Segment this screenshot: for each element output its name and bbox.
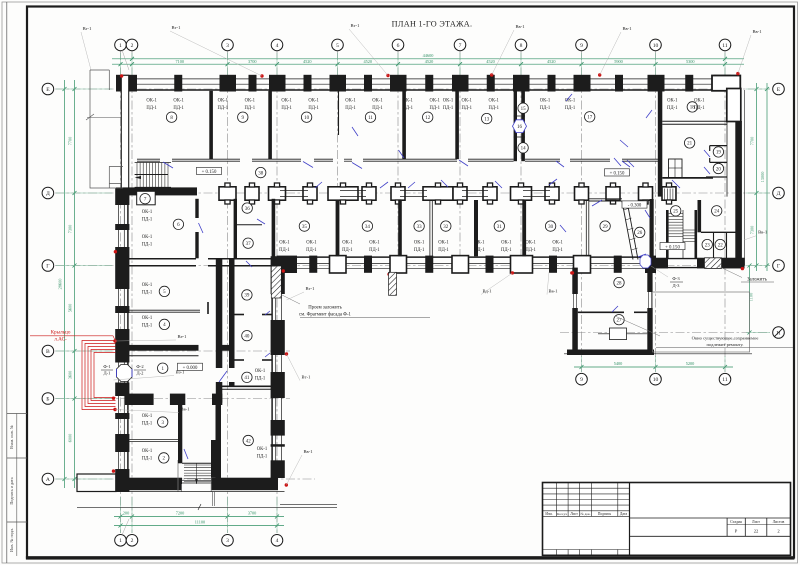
svg-text:Д-2: Д-2 [137, 371, 145, 376]
svg-text:Е: Е [777, 87, 781, 93]
svg-text:А: А [46, 477, 50, 483]
svg-text:30: 30 [548, 225, 554, 230]
svg-text:21: 21 [687, 142, 693, 147]
svg-text:Стадия: Стадия [730, 520, 742, 524]
svg-text:ПД-1: ПД-1 [501, 248, 512, 253]
svg-text:11: 11 [368, 116, 373, 121]
svg-text:Ф-1: Ф-1 [103, 364, 111, 369]
svg-text:26: 26 [637, 231, 643, 236]
svg-text:31: 31 [497, 225, 503, 230]
svg-text:4520: 4520 [363, 59, 372, 64]
svg-text:Вв-1: Вв-1 [752, 29, 762, 34]
svg-text:3: 3 [226, 538, 229, 544]
svg-text:ОК-1: ОК-1 [281, 99, 292, 104]
svg-text:Вт-1: Вт-1 [172, 25, 182, 30]
svg-text:ПД-1: ПД-1 [142, 422, 153, 427]
svg-text:11: 11 [722, 43, 728, 49]
svg-text:Д-3: Д-3 [673, 283, 681, 288]
svg-text:22: 22 [718, 243, 724, 248]
svg-text:ОК-1: ОК-1 [525, 241, 536, 246]
svg-text:ПД-1: ПД-1 [372, 106, 383, 111]
svg-text:4: 4 [276, 538, 279, 544]
svg-text:13000: 13000 [760, 172, 765, 183]
svg-text:29: 29 [603, 225, 609, 230]
svg-text:1: 1 [119, 538, 122, 544]
svg-text:24: 24 [714, 210, 720, 215]
svg-text:ОК-1: ОК-1 [552, 241, 563, 246]
svg-text:л.АС-: л.АС- [54, 337, 67, 343]
svg-text:- 0.300: - 0.300 [628, 204, 642, 209]
svg-text:6: 6 [397, 43, 400, 49]
svg-text:Кол.уч: Кол.уч [557, 512, 567, 516]
svg-text:1: 1 [119, 43, 122, 49]
svg-text:Вв-1: Вв-1 [758, 230, 768, 235]
svg-text:ПД-1: ПД-1 [540, 106, 551, 111]
svg-text:Ф-3: Ф-3 [672, 276, 680, 281]
svg-text:Вд-1: Вд-1 [482, 289, 492, 294]
svg-text:4520: 4520 [486, 59, 495, 64]
svg-text:12: 12 [425, 116, 431, 121]
svg-text:7200: 7200 [176, 511, 185, 516]
svg-text:№ док.: № док. [581, 512, 591, 516]
svg-text:ПД-1: ПД-1 [146, 106, 157, 111]
svg-text:15: 15 [521, 107, 527, 112]
svg-text:ПД-1: ПД-1 [474, 248, 485, 253]
svg-text:7300: 7300 [750, 226, 755, 235]
svg-text:8: 8 [520, 43, 523, 49]
svg-text:ОК-1: ОК-1 [501, 241, 512, 246]
svg-text:ОК-1: ОК-1 [443, 99, 454, 104]
svg-text:36: 36 [245, 207, 251, 212]
svg-text:20: 20 [716, 167, 722, 172]
svg-text:+ 0.000: + 0.000 [183, 366, 198, 371]
svg-text:ПД-1: ПД-1 [142, 243, 153, 248]
svg-text:ОК-1: ОК-1 [474, 241, 485, 246]
svg-text:ОК-1: ОК-1 [414, 241, 425, 246]
svg-text:ОК-1: ОК-1 [369, 241, 380, 246]
svg-text:ПД-1: ПД-1 [552, 248, 563, 253]
svg-text:ОК-1: ОК-1 [255, 369, 266, 374]
svg-text:Подпись: Подпись [598, 512, 612, 516]
svg-text:ОК-1: ОК-1 [142, 449, 153, 454]
svg-text:ОК-1: ОК-1 [173, 99, 184, 104]
svg-text:Ф-2: Ф-2 [136, 364, 144, 369]
svg-text:Д: Д [46, 191, 50, 197]
svg-text:В: В [46, 349, 50, 355]
svg-text:10: 10 [653, 377, 659, 383]
svg-text:40: 40 [244, 335, 250, 340]
svg-text:ПД-1: ПД-1 [279, 248, 290, 253]
svg-text:ПД-1: ПД-1 [694, 106, 705, 111]
svg-text:Б: Б [46, 396, 49, 402]
svg-text:ПД-1: ПД-1 [443, 106, 454, 111]
svg-text:ПД-1: ПД-1 [438, 248, 449, 253]
svg-text:ОК-1: ОК-1 [257, 447, 268, 452]
svg-text:ПД-1: ПД-1 [142, 324, 153, 329]
svg-text:см. Фрагмент фасада Ф-1: см. Фрагмент фасада Ф-1 [299, 313, 352, 318]
svg-text:33: 33 [417, 225, 423, 230]
svg-text:ПД-1: ПД-1 [245, 106, 256, 111]
svg-text:+ 0.150: + 0.150 [665, 245, 680, 250]
svg-text:Инв. № подл.: Инв. № подл. [9, 528, 14, 552]
svg-text:Вт-1: Вт-1 [302, 375, 312, 380]
svg-text:4520: 4520 [425, 59, 434, 64]
svg-text:Ве-1: Ве-1 [178, 334, 188, 339]
svg-text:ОК-1: ОК-1 [461, 99, 472, 104]
svg-text:16: 16 [517, 125, 523, 130]
svg-text:7300: 7300 [68, 225, 73, 234]
svg-text:ОК-1: ОК-1 [279, 241, 290, 246]
svg-text:41: 41 [244, 376, 250, 381]
svg-text:3: 3 [226, 43, 229, 49]
svg-text:Е: Е [46, 87, 50, 93]
svg-text:Лист: Лист [570, 512, 578, 516]
svg-text:4520: 4520 [303, 59, 312, 64]
svg-text:10: 10 [304, 116, 310, 121]
svg-text:22: 22 [754, 529, 759, 534]
svg-text:2: 2 [131, 43, 134, 49]
svg-text:Вз-1: Вз-1 [176, 370, 185, 375]
svg-text:3700: 3700 [248, 59, 257, 64]
svg-text:Подпись и дата: Подпись и дата [9, 477, 14, 504]
svg-text:Р: Р [735, 529, 738, 534]
svg-text:3600: 3600 [68, 371, 73, 380]
svg-text:5600: 5600 [68, 304, 73, 313]
svg-text:ОК-1: ОК-1 [306, 241, 317, 246]
svg-text:ПД-1: ПД-1 [142, 291, 153, 296]
svg-text:ПД-1: ПД-1 [255, 377, 266, 382]
svg-text:27: 27 [617, 319, 623, 324]
svg-text:17: 17 [587, 116, 593, 121]
svg-text:Вт-1: Вт-1 [306, 286, 316, 291]
svg-text:42: 42 [246, 439, 252, 444]
svg-text:7100: 7100 [175, 59, 184, 64]
svg-text:ОК-1: ОК-1 [667, 99, 678, 104]
svg-text:ОК-1: ОК-1 [540, 99, 551, 104]
svg-text:Д: Д [777, 191, 781, 197]
svg-text:39: 39 [244, 294, 250, 299]
svg-text:23: 23 [705, 243, 711, 248]
svg-text:ОК-1: ОК-1 [142, 283, 153, 288]
svg-text:7: 7 [459, 43, 462, 49]
svg-text:28: 28 [617, 281, 623, 286]
svg-text:Вв-1: Вв-1 [515, 24, 525, 29]
svg-text:10: 10 [653, 43, 659, 49]
svg-text:19: 19 [716, 151, 722, 156]
svg-text:Вв-1: Вв-1 [548, 289, 558, 294]
svg-text:ПД-1: ПД-1 [429, 106, 440, 111]
svg-text:28600: 28600 [58, 279, 63, 290]
svg-text:ПД-1: ПД-1 [142, 218, 153, 223]
svg-text:ПД-1: ПД-1 [488, 106, 499, 111]
svg-text:ОК-1: ОК-1 [308, 99, 319, 104]
svg-text:ПД-1: ПД-1 [308, 106, 319, 111]
svg-text:25: 25 [673, 210, 679, 215]
svg-text:5300: 5300 [686, 59, 695, 64]
svg-text:Вв-1: Вв-1 [303, 449, 313, 454]
svg-text:ПД-1: ПД-1 [306, 248, 317, 253]
svg-text:ПД-1: ПД-1 [565, 106, 576, 111]
svg-text:ОК-1: ОК-1 [218, 99, 229, 104]
svg-text:ПД-1: ПД-1 [369, 248, 380, 253]
svg-text:ПД-1: ПД-1 [142, 457, 153, 462]
svg-text:ПД-1: ПД-1 [218, 106, 229, 111]
svg-text:37: 37 [246, 242, 252, 247]
svg-text:38: 38 [258, 171, 264, 176]
svg-text:5400: 5400 [614, 361, 623, 366]
svg-text:13: 13 [484, 117, 490, 122]
svg-text:Дата: Дата [620, 512, 628, 516]
svg-text:ОК-1: ОК-1 [345, 99, 356, 104]
svg-text:ПД-1: ПД-1 [345, 106, 356, 111]
svg-text:подлежит ремонту.: подлежит ремонту. [706, 342, 743, 347]
svg-text:Взам. инв. №: Взам. инв. № [9, 425, 14, 449]
svg-text:ОК-1: ОК-1 [245, 99, 256, 104]
svg-text:4520: 4520 [547, 59, 556, 64]
svg-text:+ 0.150: + 0.150 [610, 172, 625, 177]
svg-text:ПД-1: ПД-1 [414, 248, 425, 253]
svg-text:ОК-1: ОК-1 [488, 99, 499, 104]
svg-text:Д-1: Д-1 [104, 371, 112, 376]
svg-text:11100: 11100 [195, 520, 205, 525]
svg-text:5900: 5900 [614, 59, 623, 64]
svg-text:Листов: Листов [773, 520, 785, 524]
svg-text:ПД-1: ПД-1 [342, 248, 353, 253]
svg-text:Вг-1: Вг-1 [83, 26, 92, 31]
svg-text:2: 2 [131, 538, 134, 544]
svg-text:ОК-1: ОК-1 [142, 235, 153, 240]
svg-text:7700: 7700 [68, 137, 73, 146]
svg-text:7700: 7700 [750, 137, 755, 146]
svg-text:Вв-1: Вв-1 [622, 26, 632, 31]
svg-text:ОК-1: ОК-1 [142, 414, 153, 419]
svg-text:9: 9 [580, 43, 583, 49]
svg-text:9: 9 [580, 377, 583, 383]
svg-text:Крыльцо: Крыльцо [51, 330, 71, 336]
svg-text:3700: 3700 [248, 511, 257, 516]
svg-text:32: 32 [443, 225, 449, 230]
svg-text:Проем заложить: Проем заложить [308, 306, 342, 311]
svg-text:ПД-1: ПД-1 [281, 106, 292, 111]
svg-text:ОК-1: ОК-1 [438, 241, 449, 246]
svg-text:ПД-1: ПД-1 [461, 106, 472, 111]
svg-text:ОК-1: ОК-1 [342, 241, 353, 246]
svg-text:ПД-1: ПД-1 [257, 455, 268, 460]
svg-text:5: 5 [336, 43, 339, 49]
svg-text:6000: 6000 [68, 434, 73, 443]
svg-text:11: 11 [722, 377, 728, 383]
svg-text:4: 4 [276, 43, 279, 49]
svg-text:5200: 5200 [686, 361, 695, 366]
svg-text:35: 35 [302, 225, 308, 230]
svg-text:ПД-1: ПД-1 [173, 106, 184, 111]
svg-text:ПД-1: ПД-1 [667, 106, 678, 111]
svg-text:Вт-1: Вт-1 [351, 23, 361, 28]
svg-text:Лист: Лист [752, 520, 760, 524]
svg-text:ОК-1: ОК-1 [402, 99, 413, 104]
svg-text:ПД-1: ПД-1 [525, 248, 536, 253]
svg-text:200: 200 [123, 511, 129, 516]
svg-text:ОК-1: ОК-1 [372, 99, 383, 104]
svg-text:+ 0.150: + 0.150 [202, 170, 217, 175]
svg-text:ОК-1: ОК-1 [146, 99, 157, 104]
svg-text:ОК-1: ОК-1 [694, 99, 705, 104]
svg-text:ОК-1: ОК-1 [142, 316, 153, 321]
svg-text:44600: 44600 [423, 53, 434, 58]
svg-text:ПЛАН 1-ГО ЭТАЖА.: ПЛАН 1-ГО ЭТАЖА. [392, 20, 473, 29]
svg-text:14: 14 [521, 147, 527, 152]
svg-text:ОК-1: ОК-1 [429, 99, 440, 104]
svg-text:ПД-1: ПД-1 [402, 106, 413, 111]
svg-text:34: 34 [365, 225, 371, 230]
svg-text:ОК-1: ОК-1 [142, 210, 153, 215]
svg-text:Вв-1: Вв-1 [180, 407, 190, 412]
svg-text:Изм.: Изм. [545, 512, 552, 516]
